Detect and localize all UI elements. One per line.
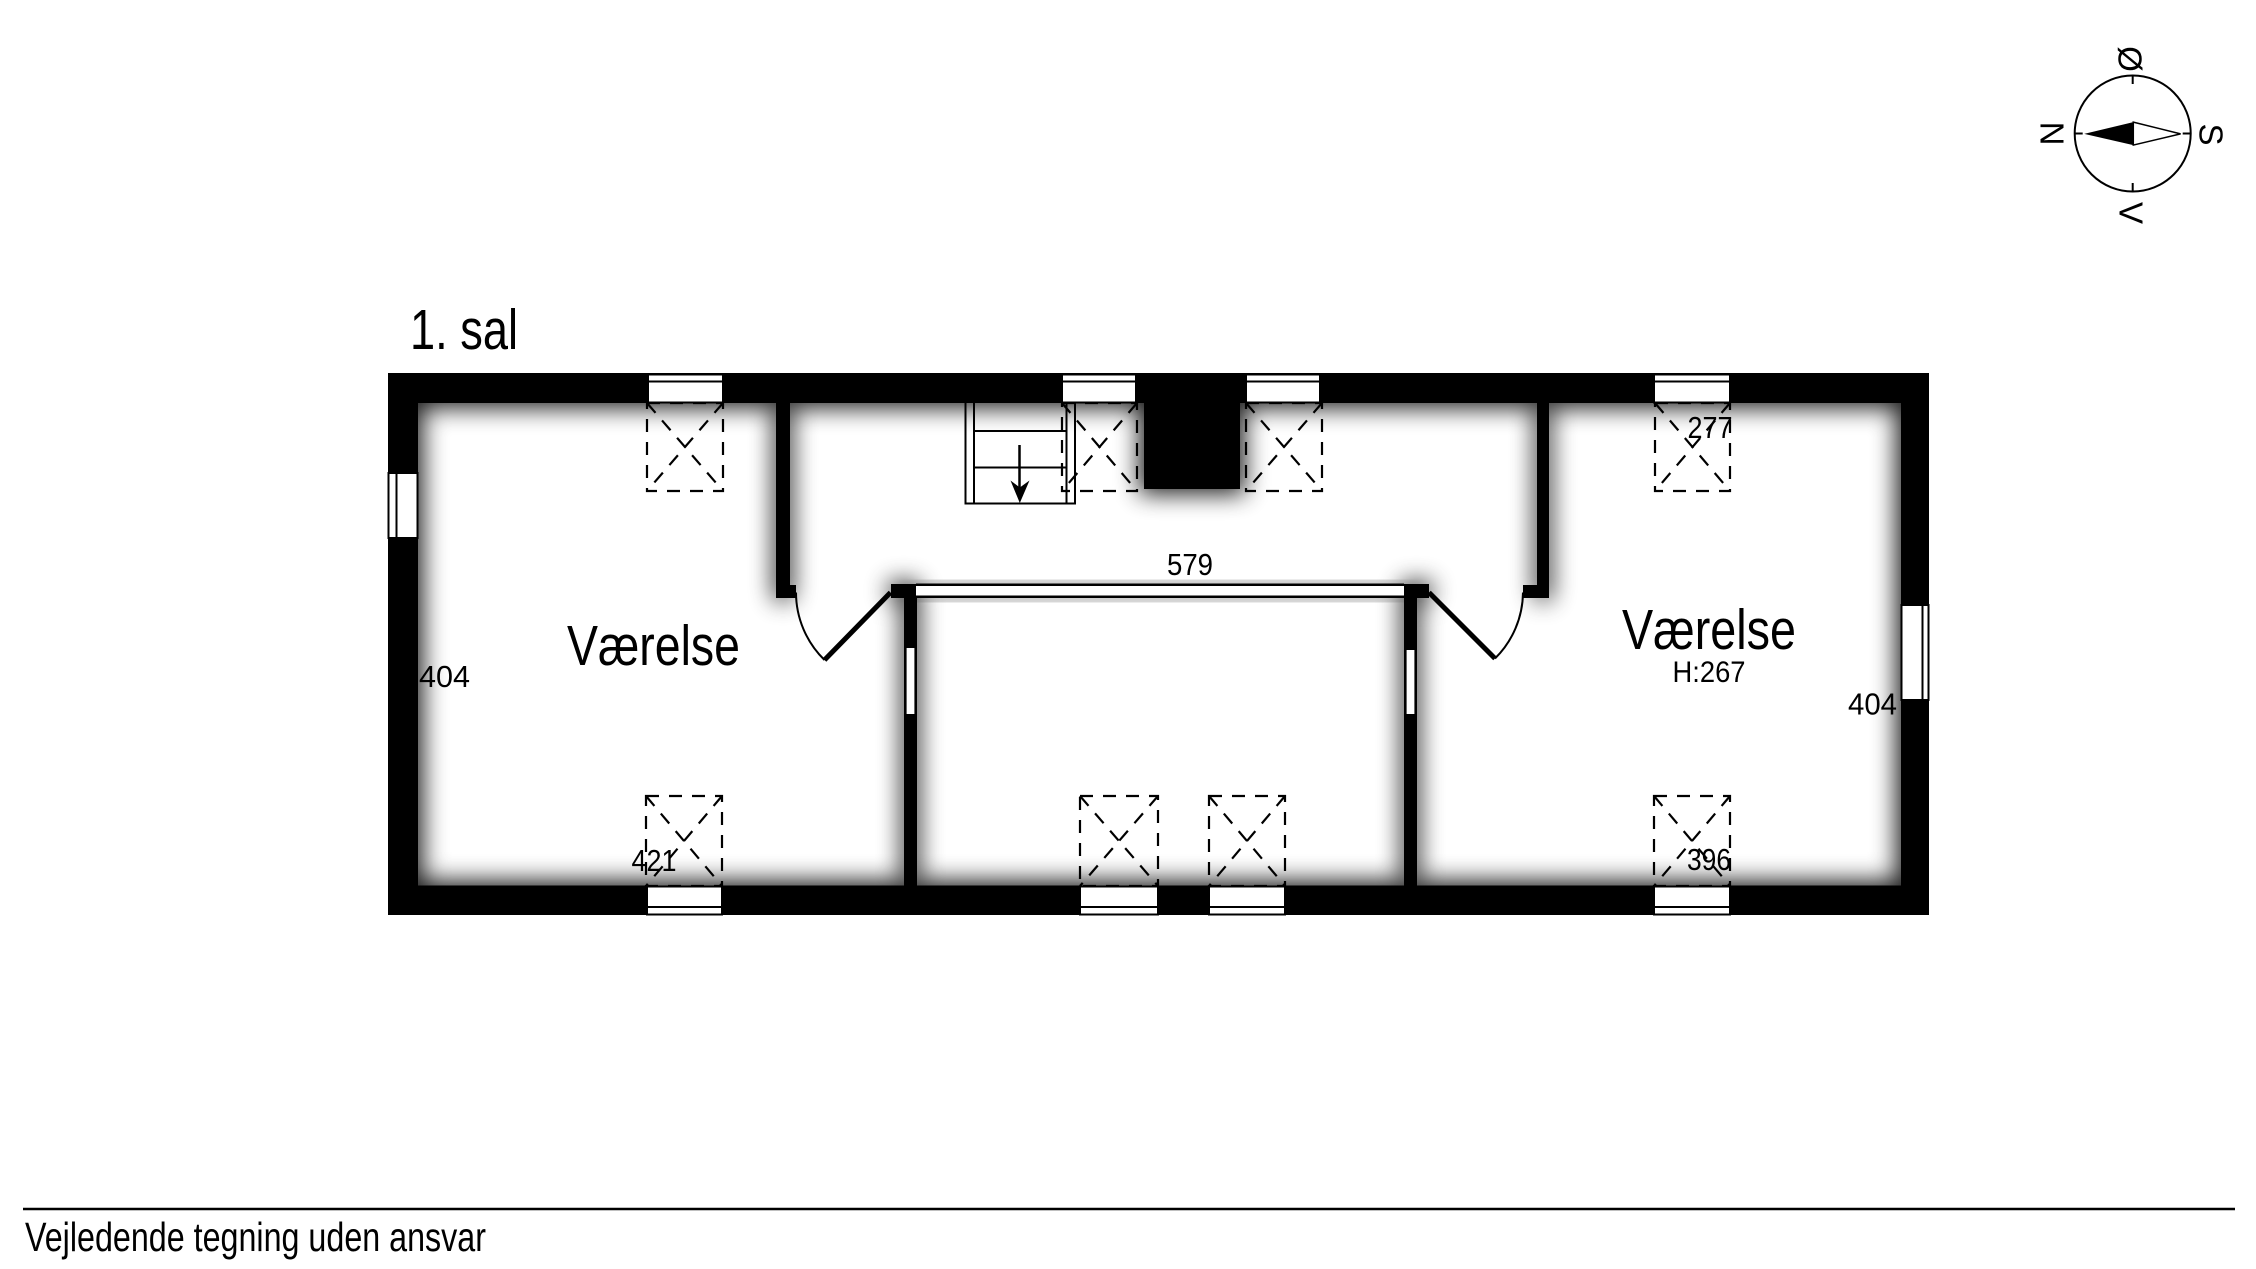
svg-text:579: 579	[1167, 547, 1213, 582]
svg-text:Værelse: Værelse	[567, 614, 740, 678]
svg-text:Vejledende tegning uden ansvar: Vejledende tegning uden ansvar	[25, 1214, 486, 1260]
svg-text:N: N	[2034, 122, 2071, 146]
svg-text:Værelse: Værelse	[1622, 598, 1796, 662]
svg-text:396: 396	[1687, 842, 1731, 877]
svg-text:404: 404	[1848, 687, 1897, 722]
svg-text:404: 404	[419, 659, 470, 694]
svg-text:1. sal: 1. sal	[410, 298, 518, 362]
svg-text:H:267: H:267	[1673, 656, 1746, 689]
svg-text:V: V	[2113, 202, 2150, 224]
svg-text:277: 277	[1688, 410, 1733, 445]
svg-text:Ø: Ø	[2112, 46, 2149, 72]
svg-text:S: S	[2193, 123, 2230, 145]
svg-text:421: 421	[632, 843, 677, 878]
